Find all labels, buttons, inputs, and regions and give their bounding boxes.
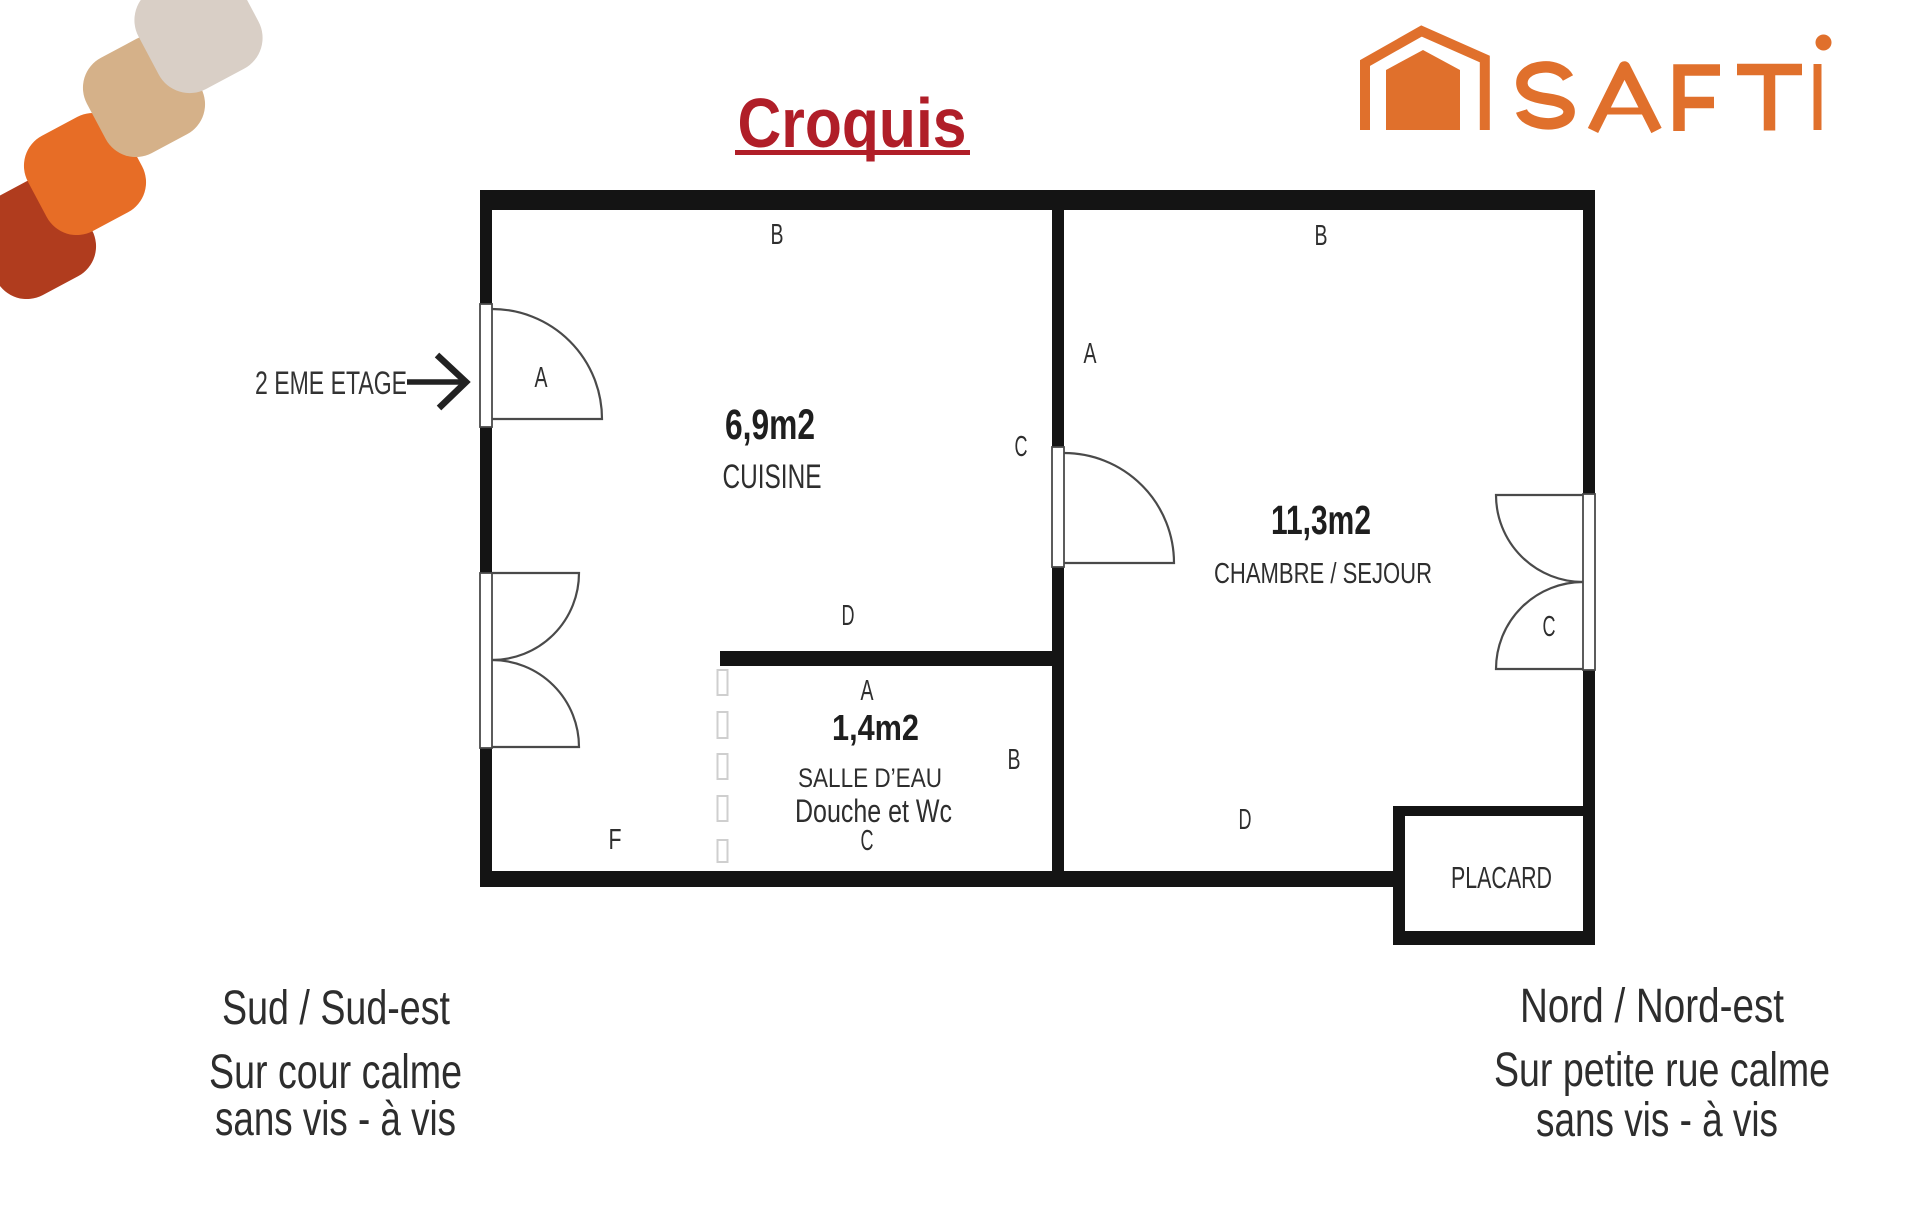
svg-text:B: B	[1008, 744, 1021, 776]
svg-text:B: B	[771, 219, 784, 251]
svg-text:PLACARD: PLACARD	[1451, 860, 1552, 895]
svg-text:B: B	[1315, 220, 1328, 252]
svg-text:A: A	[861, 675, 874, 707]
svg-text:A: A	[535, 362, 548, 394]
svg-text:1,4m2: 1,4m2	[832, 707, 919, 748]
svg-text:Douche et Wc: Douche et Wc	[795, 793, 952, 829]
svg-text:Nord / Nord-est: Nord / Nord-est	[1520, 980, 1784, 1033]
svg-text:11,3m2: 11,3m2	[1271, 497, 1371, 543]
svg-text:Sud / Sud-est: Sud / Sud-est	[222, 982, 450, 1035]
svg-text:D: D	[1239, 804, 1252, 836]
svg-text:CHAMBRE / SEJOUR: CHAMBRE / SEJOUR	[1214, 558, 1432, 590]
svg-text:CUISINE: CUISINE	[723, 458, 822, 496]
svg-text:A: A	[1084, 338, 1097, 370]
svg-text:Sur cour calme: Sur cour calme	[209, 1046, 462, 1099]
svg-text:Sur petite rue calme: Sur petite rue calme	[1494, 1044, 1830, 1097]
svg-text:C: C	[1543, 611, 1556, 643]
svg-text:2 EME ETAGE: 2 EME ETAGE	[255, 365, 407, 401]
svg-text:C: C	[861, 825, 874, 857]
svg-text:sans vis - à vis: sans vis - à vis	[1536, 1094, 1778, 1147]
svg-text:F: F	[609, 824, 622, 856]
svg-text:SALLE D’EAU: SALLE D’EAU	[798, 763, 942, 793]
svg-text:C: C	[1015, 431, 1028, 463]
svg-text:D: D	[842, 600, 855, 632]
svg-text:sans vis - à vis: sans vis - à vis	[215, 1093, 456, 1146]
svg-text:6,9m2: 6,9m2	[725, 401, 815, 449]
